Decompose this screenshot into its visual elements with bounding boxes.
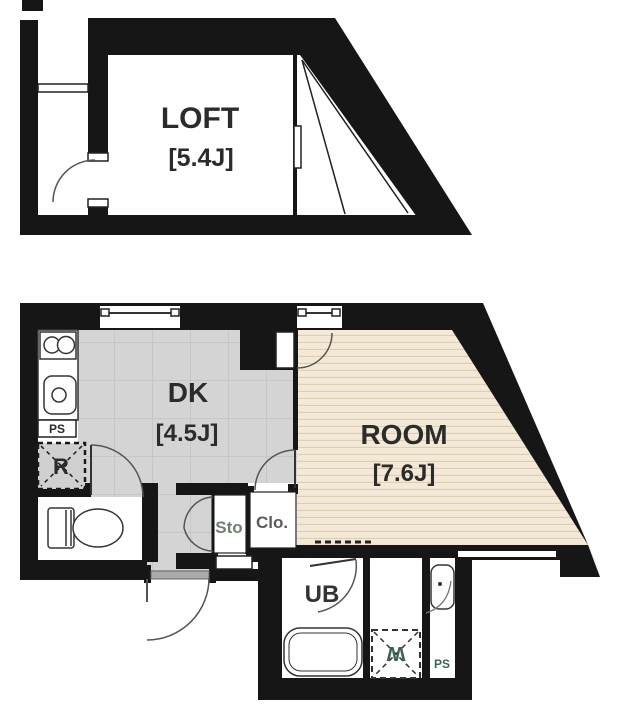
room-window-end-right	[332, 309, 340, 316]
entry-right-wall	[212, 569, 260, 581]
top-wall	[20, 303, 483, 330]
room-size-label: [7.6J]	[373, 460, 436, 487]
dk-label: DK	[168, 377, 208, 408]
bathtub	[284, 628, 362, 676]
washer-divider	[422, 558, 430, 678]
bath-right-wall	[455, 548, 472, 700]
dk-window	[100, 306, 180, 328]
washbasin-drain	[438, 582, 442, 586]
kitchen-sink-drain	[52, 388, 66, 402]
dk-window-end-right	[171, 309, 179, 316]
ps-kitchen-label: PS	[49, 422, 65, 436]
stove-burner-right	[58, 337, 75, 354]
unit-bath: UB	[282, 558, 363, 678]
loft-window-handle	[294, 126, 301, 168]
ps-bath-label: PS	[434, 657, 450, 671]
refrigerator-label: R	[53, 454, 69, 479]
entry-post-right	[209, 565, 216, 583]
kitchen: PS	[38, 330, 78, 437]
dk-room-door-panel	[276, 332, 294, 368]
room-window-end-left	[298, 309, 306, 316]
entrance-door-swing	[147, 578, 209, 640]
loft-corridor-window	[38, 84, 88, 92]
loft-plan: LOFT [5.4J]	[20, 0, 472, 235]
loft-slant-wall	[300, 18, 472, 235]
dk-window-end-left	[101, 309, 109, 316]
toilet-bowl	[73, 509, 123, 547]
dk-window-glass	[100, 306, 180, 328]
loft-label: LOFT	[161, 102, 239, 135]
loft-door-jamb-bottom	[88, 199, 108, 207]
storage-top-wall	[176, 483, 248, 495]
loft-left-wall	[20, 20, 38, 235]
loft-bottom-wall	[20, 215, 440, 235]
washbasin-area: PS	[426, 558, 455, 678]
closet-label: Clo.	[256, 513, 288, 532]
basin-shelf	[430, 620, 455, 638]
entrance-door-sill	[151, 571, 209, 579]
loft-wall-stub	[22, 0, 43, 11]
main-plan: PS R Sto Clo.	[20, 303, 602, 700]
storage-label: Sto	[215, 518, 242, 537]
toilet-tank	[48, 508, 74, 548]
floorplan-svg: LOFT [5.4J]	[0, 0, 627, 720]
room-label: ROOM	[360, 419, 447, 450]
washer-label: W	[386, 642, 405, 664]
ub-divider	[363, 558, 371, 678]
refrigerator-space: R	[38, 443, 85, 489]
loft-top-wall	[88, 18, 335, 55]
toilet-right-wall	[142, 483, 158, 562]
floorplan-page: LOFT [5.4J]	[0, 0, 627, 720]
bottom-left-wall	[20, 558, 147, 580]
bath-bottom-wall	[258, 678, 472, 700]
loft-door	[53, 153, 110, 207]
washer-space: W	[370, 558, 422, 678]
unit-bath-label: UB	[305, 581, 340, 608]
balcony-edge-line	[458, 551, 556, 557]
dk-room-partition	[293, 368, 298, 450]
dk-size-label: [4.5J]	[156, 420, 219, 447]
entry-shoe-box	[216, 556, 252, 569]
left-wall	[20, 303, 38, 580]
room-window	[297, 306, 342, 328]
closet: Clo.	[250, 492, 296, 548]
loft-size-label: [5.4J]	[168, 144, 233, 172]
bath-left-wall	[258, 548, 282, 700]
toilet-doorway-floor	[91, 483, 145, 497]
